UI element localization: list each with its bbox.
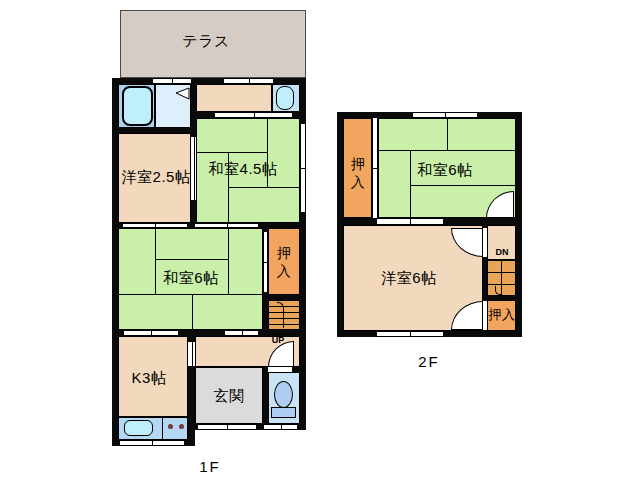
- toilet-tank: [271, 407, 296, 418]
- stair-step-line: [268, 318, 300, 319]
- stairs-down-label: DN: [496, 247, 509, 257]
- wall: [112, 78, 118, 446]
- room-label-western-6: 洋室6帖: [381, 269, 436, 288]
- stair-step-line: [487, 284, 516, 285]
- tatami-line: [410, 185, 516, 186]
- tatami-line: [192, 294, 193, 330]
- door-opening: [188, 342, 195, 366]
- room-label-western-2-5: 洋室2.5帖: [122, 168, 191, 187]
- wall: [112, 78, 306, 84]
- staircase-1f: [268, 300, 300, 330]
- window: [224, 78, 273, 84]
- tatami-line: [228, 228, 229, 294]
- sliding-door: [225, 330, 258, 336]
- stove-burner-icon: [168, 424, 173, 429]
- sliding-door: [124, 330, 178, 336]
- stair-step-line: [268, 324, 300, 325]
- stair-step-line: [487, 272, 516, 273]
- washbasin: [276, 86, 294, 110]
- tatami-line: [196, 152, 267, 153]
- sliding-door: [195, 223, 258, 228]
- window: [264, 424, 297, 430]
- tatami-line: [378, 150, 516, 151]
- tatami-line: [155, 259, 229, 260]
- sliding-door: [372, 118, 378, 218]
- kitchen-sink: [124, 420, 153, 436]
- stair-step-line: [268, 306, 300, 307]
- tatami-line: [228, 187, 300, 188]
- wall: [191, 84, 196, 133]
- room-label-kitchen: K3帖: [132, 369, 167, 388]
- stairs-up-label: UP: [272, 335, 285, 345]
- door-opening: [268, 367, 292, 372]
- stair-down-arrow-icon: [495, 286, 502, 295]
- door-opening: [191, 137, 196, 200]
- closet-label-1f: 押入: [276, 245, 293, 280]
- stove-burner-icon: [179, 424, 184, 429]
- entry-label: 玄関: [214, 387, 245, 406]
- wall: [263, 367, 268, 430]
- sliding-door: [215, 112, 292, 118]
- terrace-label: テラス: [182, 32, 230, 51]
- window: [300, 124, 306, 212]
- window: [153, 78, 191, 84]
- entrance-sliding-door: [198, 424, 256, 430]
- stair-up-arrow-icon: [277, 302, 284, 328]
- tatami-line: [410, 150, 411, 218]
- tatami-line: [447, 118, 448, 150]
- room-label-japanese-6-1f: 和室6帖: [163, 269, 218, 288]
- sliding-door: [377, 218, 443, 225]
- sliding-door: [263, 232, 268, 292]
- stair-step-line: [268, 312, 300, 313]
- washbasin-sink-icon: [175, 87, 190, 100]
- door-opening: [483, 301, 487, 330]
- sliding-door: [123, 223, 187, 228]
- bathtub: [122, 86, 153, 126]
- wall: [292, 367, 306, 372]
- floor-label-2f: 2F: [418, 353, 440, 370]
- closet-label-2f-left: 押入: [350, 156, 367, 191]
- room-label-japanese-6-2f: 和室6帖: [417, 161, 472, 180]
- wall: [263, 295, 306, 300]
- tatami-line: [155, 228, 156, 294]
- window: [377, 331, 443, 337]
- corridor-area: [196, 84, 272, 112]
- toilet-bowl: [274, 381, 293, 408]
- wall: [483, 296, 516, 300]
- tatami-line: [118, 294, 263, 295]
- window: [413, 112, 477, 118]
- wall: [112, 128, 196, 133]
- window: [120, 440, 184, 446]
- closet-label-2f-right: 押入: [489, 306, 516, 324]
- room-label-japanese-4-5: 和室4.5帖: [209, 160, 278, 179]
- door-opening: [483, 228, 487, 257]
- floor-label-1f: 1F: [199, 458, 221, 475]
- counter-divider-line: [162, 417, 163, 440]
- floor-plan-canvas: テラス 洋室2.5帖 和室4.5帖 和室6帖 押入 UP K3帖 玄関 1F 押…: [0, 0, 638, 480]
